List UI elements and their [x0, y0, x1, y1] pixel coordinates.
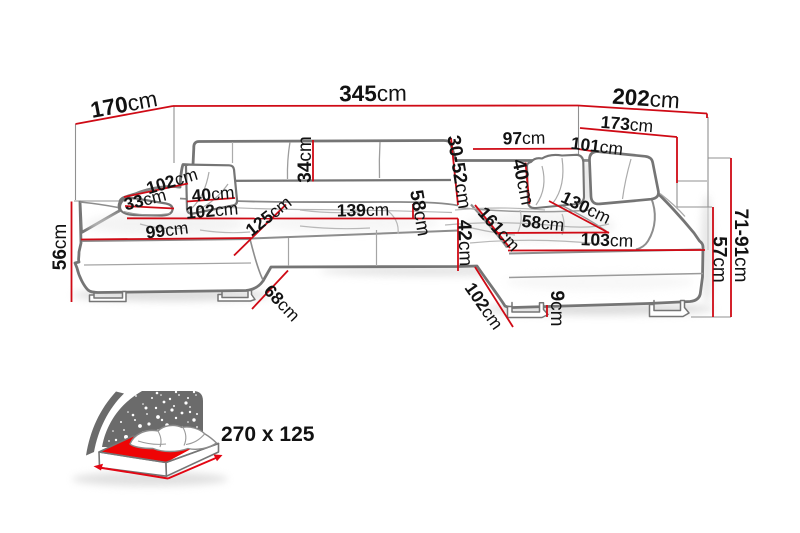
svg-text:68cm: 68cm: [260, 281, 304, 326]
svg-text:57cm: 57cm: [709, 236, 730, 282]
svg-text:173cm: 173cm: [600, 112, 654, 137]
svg-text:56cm: 56cm: [50, 224, 71, 270]
svg-text:270 x 125: 270 x 125: [221, 423, 315, 446]
svg-text:42cm: 42cm: [453, 219, 476, 266]
svg-text:97cm: 97cm: [502, 128, 545, 149]
svg-text:34cm: 34cm: [295, 136, 316, 182]
svg-text:139cm: 139cm: [337, 200, 390, 221]
svg-text:170cm: 170cm: [88, 86, 159, 123]
svg-text:71-91cm: 71-91cm: [730, 209, 751, 283]
svg-text:202cm: 202cm: [611, 84, 680, 114]
svg-text:345cm: 345cm: [339, 81, 407, 107]
svg-text:103cm: 103cm: [580, 229, 633, 251]
svg-text:9cm: 9cm: [546, 291, 567, 327]
